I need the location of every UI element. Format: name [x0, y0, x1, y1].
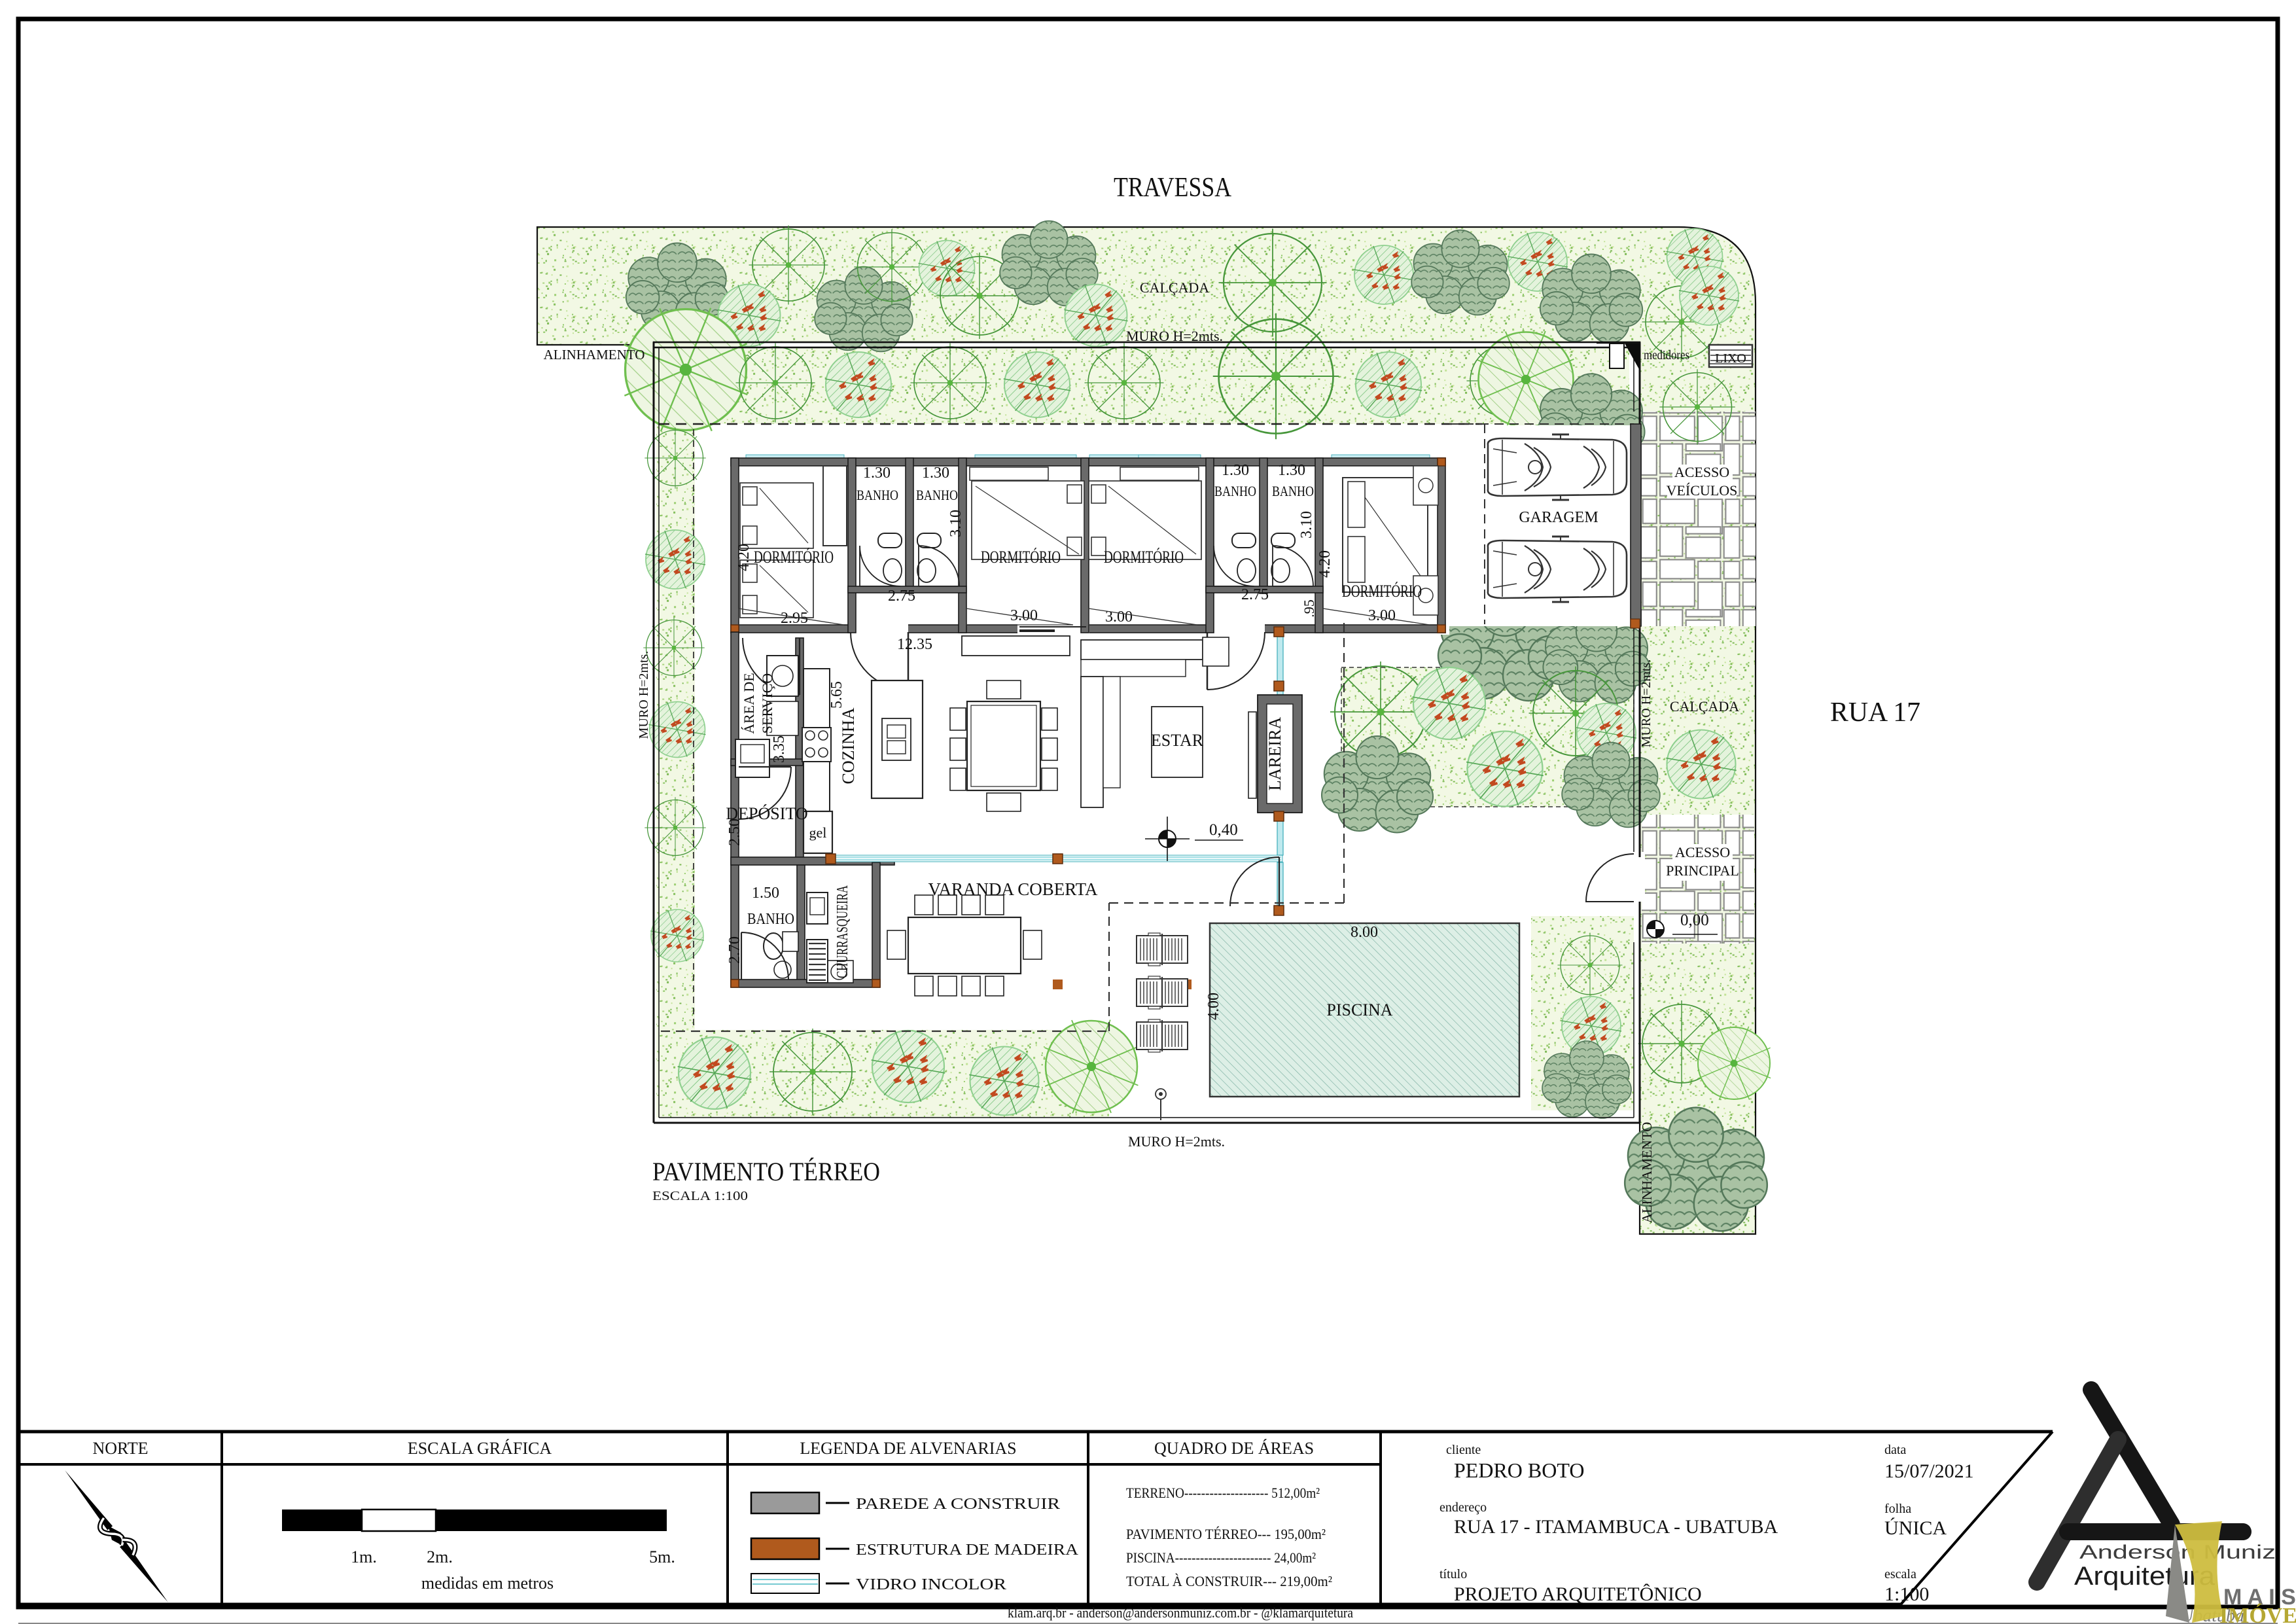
- svg-text:MURO H=2mts.: MURO H=2mts.: [1128, 1133, 1225, 1150]
- svg-text:0,00: 0,00: [1680, 911, 1709, 929]
- svg-text:CHURRASQUEIRA: CHURRASQUEIRA: [834, 885, 851, 978]
- svg-text:BANHO: BANHO: [1272, 483, 1314, 499]
- svg-text:RUA 17 - ITAMAMBUCA - UBATUBA: RUA 17 - ITAMAMBUCA - UBATUBA: [1454, 1516, 1778, 1538]
- svg-text:4.20: 4.20: [1316, 550, 1333, 578]
- svg-text:DORMITÓRIO: DORMITÓRIO: [1104, 548, 1184, 567]
- svg-text:folha: folha: [1884, 1502, 1911, 1516]
- svg-text:1.30: 1.30: [1278, 462, 1305, 479]
- svg-text:0,40: 0,40: [1209, 821, 1238, 839]
- svg-text:1.50: 1.50: [752, 885, 779, 902]
- svg-text:5.65: 5.65: [828, 681, 845, 709]
- svg-text:MURO H=2mts.: MURO H=2mts.: [637, 651, 651, 739]
- svg-text:PEDRO BOTO: PEDRO BOTO: [1454, 1458, 1584, 1482]
- svg-text:12.35: 12.35: [897, 636, 932, 653]
- svg-text:PROJETO ARQUITETÔNICO: PROJETO ARQUITETÔNICO: [1454, 1583, 1702, 1605]
- svg-text:PRINCIPAL: PRINCIPAL: [1666, 862, 1739, 879]
- svg-text:3.00: 3.00: [1105, 609, 1133, 626]
- svg-text:2m.: 2m.: [427, 1547, 453, 1566]
- svg-text:ESTAR: ESTAR: [1151, 731, 1204, 750]
- svg-text:2.75: 2.75: [1241, 586, 1269, 603]
- svg-text:15/07/2021: 15/07/2021: [1884, 1460, 1974, 1482]
- svg-text:QUADRO DE ÁREAS: QUADRO DE ÁREAS: [1154, 1439, 1314, 1458]
- svg-text:ÚNICA: ÚNICA: [1884, 1517, 1947, 1539]
- svg-text:PISCINA-----------------------: PISCINA----------------------- 24,00m²: [1126, 1549, 1316, 1566]
- svg-text:título: título: [1439, 1567, 1467, 1581]
- svg-text:escala: escala: [1884, 1567, 1916, 1581]
- svg-text:IMÓVEIS: IMÓVEIS: [2219, 1603, 2296, 1624]
- svg-text:ÁREA DE: ÁREA DE: [741, 673, 757, 734]
- svg-text:MURO H=2mts.: MURO H=2mts.: [1639, 660, 1653, 748]
- svg-text:COZINHA: COZINHA: [839, 707, 858, 784]
- svg-text:5m.: 5m.: [649, 1547, 675, 1566]
- svg-text:2.50: 2.50: [726, 819, 743, 846]
- svg-text:DORMITÓRIO: DORMITÓRIO: [754, 548, 834, 567]
- svg-text:BANHO: BANHO: [1214, 483, 1256, 499]
- svg-text:4.20: 4.20: [735, 544, 752, 571]
- svg-text:CALÇADA: CALÇADA: [1140, 279, 1209, 296]
- svg-text:BANHO: BANHO: [857, 487, 898, 503]
- svg-text:NORTE: NORTE: [92, 1439, 148, 1458]
- svg-text:8.00: 8.00: [1351, 924, 1378, 941]
- svg-text:klam.arq.br - anderson@anderso: klam.arq.br - anderson@andersonmuniz.com…: [1008, 1604, 1353, 1621]
- svg-text:PAREDE A CONSTRUIR: PAREDE A CONSTRUIR: [856, 1496, 1060, 1513]
- svg-text:1.30: 1.30: [922, 465, 949, 482]
- svg-text:TOTAL À CONSTRUIR--- 219,00m²: TOTAL À CONSTRUIR--- 219,00m²: [1126, 1573, 1332, 1589]
- svg-text:ALINHAMENTO: ALINHAMENTO: [1639, 1122, 1655, 1224]
- svg-text:2.70: 2.70: [726, 936, 743, 964]
- svg-text:3.10: 3.10: [1298, 511, 1315, 538]
- svg-text:VEÍCULOS: VEÍCULOS: [1667, 482, 1738, 499]
- svg-text:1.30: 1.30: [863, 465, 891, 482]
- svg-text:ACESSO: ACESSO: [1674, 464, 1729, 480]
- svg-text:1:100: 1:100: [1884, 1583, 1929, 1605]
- svg-text:ESCALA GRÁFICA: ESCALA GRÁFICA: [408, 1439, 552, 1458]
- svg-text:PAVIMENTO TÉRREO: PAVIMENTO TÉRREO: [652, 1157, 880, 1186]
- svg-text:3.35: 3.35: [771, 735, 788, 763]
- svg-text:4.00: 4.00: [1205, 993, 1222, 1020]
- svg-text:2.75: 2.75: [888, 588, 915, 605]
- svg-text:MURO H=2mts.: MURO H=2mts.: [1126, 328, 1223, 344]
- svg-text:PAVIMENTO TÉRREO--- 195,00m²: PAVIMENTO TÉRREO--- 195,00m²: [1126, 1526, 1326, 1542]
- svg-text:RUA 17: RUA 17: [1830, 697, 1920, 728]
- svg-text:ESCALA 1:100: ESCALA 1:100: [652, 1189, 748, 1203]
- svg-text:ACESSO: ACESSO: [1675, 844, 1730, 860]
- svg-text:DORMITÓRIO: DORMITÓRIO: [981, 548, 1061, 567]
- svg-text:BANHO: BANHO: [916, 487, 958, 503]
- svg-text:TERRENO-------------------- 51: TERRENO-------------------- 512,00m²: [1126, 1485, 1320, 1501]
- svg-text:BANHO: BANHO: [747, 911, 794, 928]
- svg-text:LAREIRA: LAREIRA: [1265, 716, 1284, 790]
- svg-text:.95: .95: [1301, 599, 1317, 618]
- svg-text:1m.: 1m.: [351, 1547, 377, 1566]
- svg-text:ESTRUTURA DE MADEIRA: ESTRUTURA DE MADEIRA: [856, 1542, 1079, 1559]
- svg-text:gel: gel: [809, 824, 827, 841]
- svg-text:medidores: medidores: [1644, 348, 1689, 362]
- svg-text:TRAVESSA: TRAVESSA: [1114, 173, 1232, 203]
- svg-text:GARAGEM: GARAGEM: [1519, 509, 1598, 526]
- svg-text:medidas em metros: medidas em metros: [421, 1574, 554, 1593]
- svg-text:PISCINA: PISCINA: [1326, 1000, 1392, 1019]
- svg-text:ALINHAMENTO: ALINHAMENTO: [544, 347, 645, 362]
- svg-text:SERVIÇO: SERVIÇO: [759, 673, 775, 733]
- svg-text:cliente: cliente: [1446, 1443, 1481, 1457]
- svg-text:LEGENDA DE ALVENARIAS: LEGENDA DE ALVENARIAS: [800, 1439, 1016, 1458]
- svg-text:1.30: 1.30: [1222, 462, 1249, 479]
- svg-text:VIDRO INCOLOR: VIDRO INCOLOR: [856, 1576, 1006, 1593]
- svg-text:DORMITÓRIO: DORMITÓRIO: [1342, 582, 1422, 601]
- svg-text:data: data: [1884, 1443, 1906, 1457]
- svg-text:endereço: endereço: [1439, 1500, 1487, 1515]
- svg-text:3.10: 3.10: [947, 510, 964, 537]
- svg-text:CALÇADA: CALÇADA: [1670, 698, 1739, 715]
